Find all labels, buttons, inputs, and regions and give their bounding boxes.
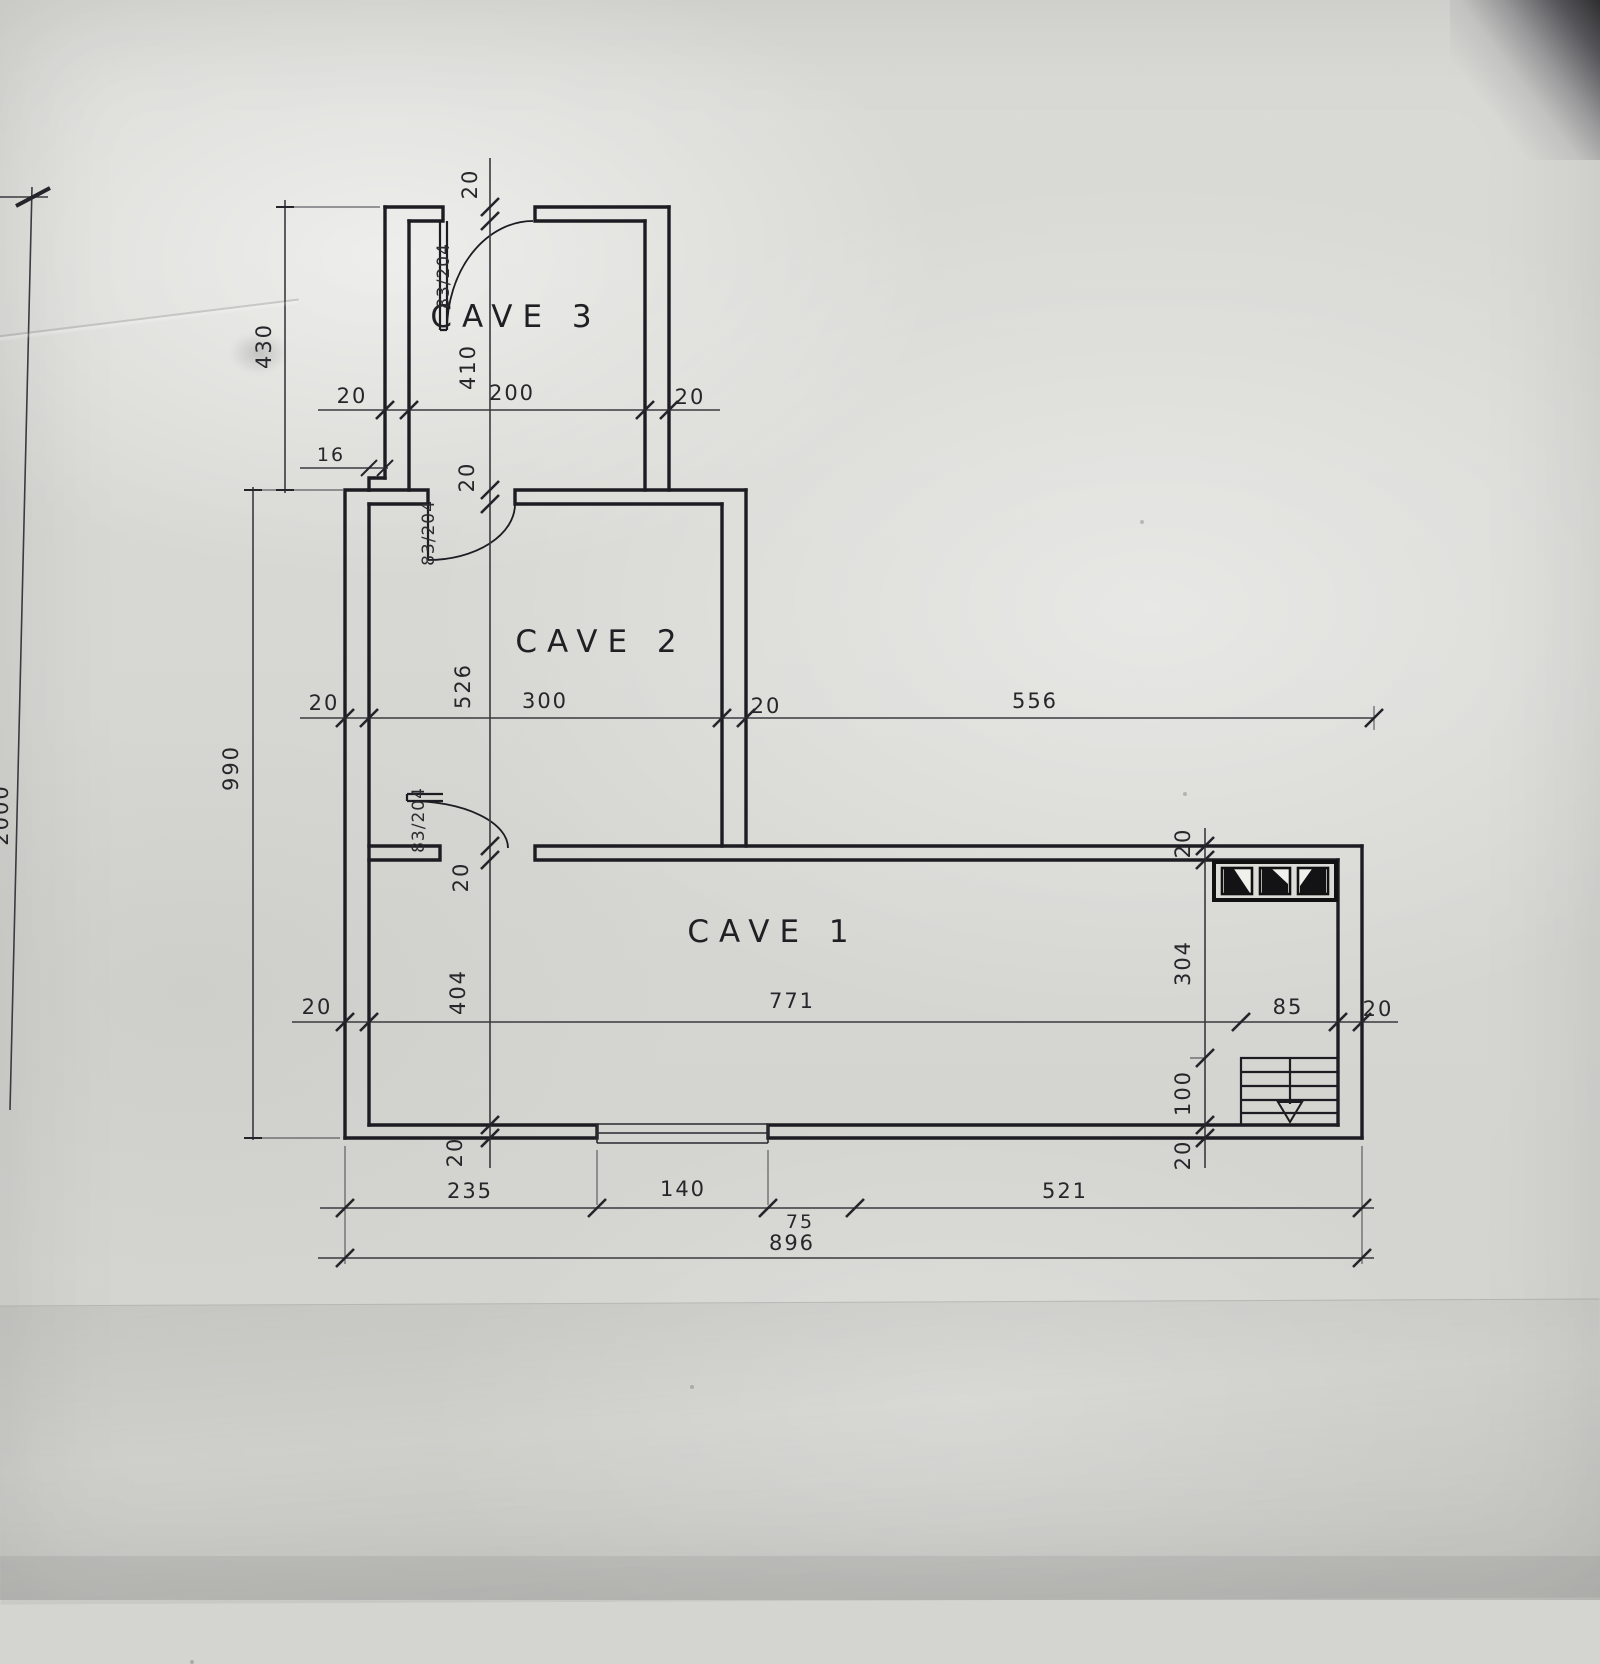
dim-bottom-total: 896: [769, 1231, 815, 1255]
dim-cave3-wall-left: 20: [337, 384, 368, 408]
dim-bottom-seg3: 75: [786, 1211, 814, 1233]
dim-cave3-width: 200: [489, 381, 535, 405]
dim-cave1-top-wall: 20: [449, 862, 473, 893]
blueprint-photo: CAVE 3 CAVE 2 CAVE 1 83/204 83/204 83/20…: [0, 0, 1600, 1600]
dim-cave3-side-total: 430: [252, 323, 276, 369]
dim-cave2-top-wall: 20: [455, 462, 479, 493]
dim-bottom-seg1: 235: [447, 1179, 493, 1203]
dim-cave3-wall-right: 20: [675, 385, 706, 409]
room-label-cave2: CAVE 2: [515, 624, 686, 660]
bottom-window-icon: [597, 1124, 768, 1143]
dim-cave2-width: 300: [522, 689, 568, 713]
paper-speck: [190, 1660, 194, 1664]
dim-edge-partial: 2000: [0, 784, 13, 845]
dim-cave3-height: 410: [456, 344, 480, 390]
basement-window-icon: [1214, 862, 1336, 900]
dim-cave2-wall-right: 20: [751, 694, 782, 718]
floor-plan-svg: CAVE 3 CAVE 2 CAVE 1 83/204 83/204 83/20…: [0, 0, 1600, 1600]
room-label-cave1: CAVE 1: [687, 914, 858, 950]
dim-cave1-bottom-wall: 20: [443, 1137, 467, 1168]
dim-right-bottom-wall: 20: [1171, 1140, 1195, 1171]
stairs: [1241, 1058, 1338, 1125]
door-swing-arc: [428, 504, 515, 560]
door-size-label-cave3: 83/204: [434, 243, 454, 309]
dim-right-top-span: 556: [1012, 689, 1058, 713]
dim-step-16: 16: [317, 444, 345, 466]
dim-right-top-wall: 20: [1171, 828, 1195, 859]
dim-cave2-height: 526: [451, 663, 475, 709]
dim-cave3-top-wall: 20: [458, 169, 482, 200]
labels: CAVE 3 CAVE 2 CAVE 1 83/204 83/204 83/20…: [0, 169, 1393, 1255]
dim-stair-width: 85: [1273, 995, 1304, 1019]
dim-cave1-height: 404: [446, 969, 470, 1015]
dim-cave1-wall-right: 20: [1363, 997, 1394, 1021]
dim-left-side-total: 990: [219, 745, 243, 791]
dim-cave2-wall-left: 20: [309, 691, 340, 715]
dim-cave1-width: 771: [769, 989, 815, 1013]
walls: [345, 207, 1362, 1138]
dim-cave1-wall-left: 20: [302, 995, 333, 1019]
door-size-label-cave1: 83/204: [409, 787, 429, 853]
extension-lines: [253, 207, 1374, 1264]
dim-bottom-seg4: 521: [1042, 1179, 1088, 1203]
room-label-cave3: CAVE 3: [430, 299, 601, 335]
door-size-label-cave2: 83/204: [419, 500, 439, 566]
door-cave2: [428, 504, 515, 560]
dim-stair-height: 100: [1171, 1070, 1195, 1116]
dim-cave1-right-height: 304: [1171, 940, 1195, 986]
dim-bottom-seg2: 140: [660, 1177, 706, 1201]
